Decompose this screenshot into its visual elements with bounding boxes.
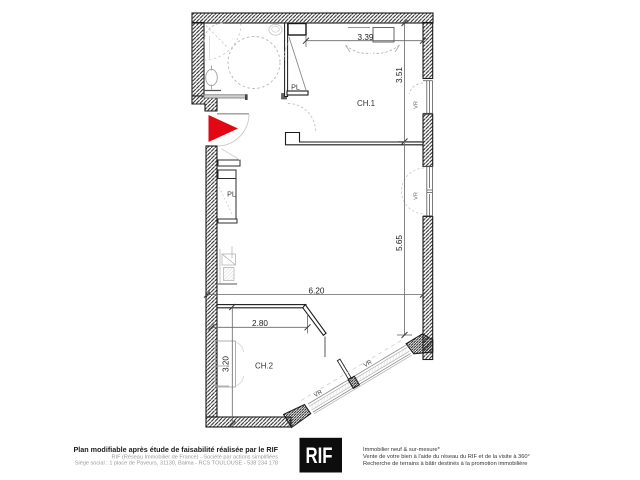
svg-text:3.51: 3.51 <box>395 67 404 83</box>
svg-text:3.39: 3.39 <box>358 33 374 42</box>
svg-text:Plan modifiable après étude de: Plan modifiable après étude de faisabili… <box>73 445 278 454</box>
svg-text:Vente de votre bien à l'aide d: Vente de votre bien à l'aide du réseau d… <box>363 454 530 460</box>
svg-text:VR: VR <box>414 101 420 109</box>
svg-text:Immobilier neuf & sur-mesure*: Immobilier neuf & sur-mesure* <box>363 447 441 453</box>
svg-text:Recherche de terrains à bâtir: Recherche de terrains à bâtir destinés à… <box>363 461 527 467</box>
svg-text:RIF: RIF <box>306 443 333 468</box>
svg-text:CH.2: CH.2 <box>255 362 273 371</box>
svg-text:VR: VR <box>414 192 420 200</box>
svg-text:PL: PL <box>291 83 300 92</box>
svg-text:PL: PL <box>227 190 236 199</box>
svg-text:2.80: 2.80 <box>252 319 268 328</box>
svg-text:CH.1: CH.1 <box>357 99 375 108</box>
svg-text:6.20: 6.20 <box>309 287 325 296</box>
svg-text:3.20: 3.20 <box>222 356 231 372</box>
svg-text:5.65: 5.65 <box>395 235 404 251</box>
svg-text:Siège social : 1 place de Pave: Siège social : 1 place de Paveurs, 31130… <box>75 461 278 467</box>
svg-text:RIF (Réseau Immobilier de Fran: RIF (Réseau Immobilier de France) - Soci… <box>112 454 279 460</box>
